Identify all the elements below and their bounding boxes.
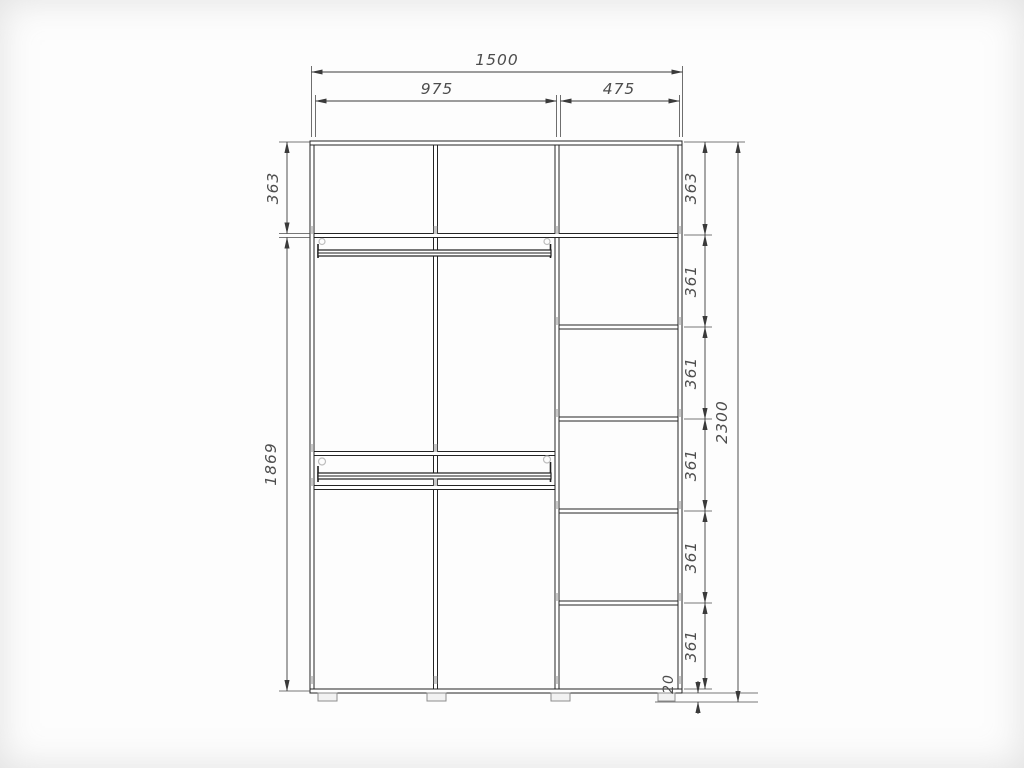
top-shelf-full-width (314, 234, 678, 238)
top-panel (310, 141, 682, 145)
dim-total-height: 2300 (713, 142, 738, 702)
dim-left-top: 363 (264, 142, 287, 234)
drawing-canvas: 1500 975 475 363 1869 (0, 0, 1024, 768)
right-shelf-1 (559, 325, 678, 329)
foot (318, 693, 337, 701)
dim-left-width: 975 (316, 80, 557, 101)
bottom-panel (310, 689, 682, 693)
dim-right-sections: 363 361 361 361 361 361 (682, 142, 705, 689)
dim-label-left-bottom: 1869 (262, 442, 280, 485)
right-shelf-4 (559, 601, 678, 605)
right-shelf-3 (559, 509, 678, 513)
foot (551, 693, 570, 701)
dim-label-right-width: 475 (603, 80, 636, 98)
dimension-lines: 1500 975 475 363 1869 (262, 51, 758, 714)
dim-label-right-6: 361 (682, 630, 700, 663)
cabinet (310, 141, 682, 701)
rail-fitting-icon (319, 239, 325, 245)
foot (427, 693, 446, 701)
dim-label-floor-gap: 20 (661, 674, 677, 694)
left-mid-shelf-upper (314, 452, 555, 456)
dim-label-left-width: 975 (421, 80, 454, 98)
dim-left-bottom: 1869 (262, 238, 287, 692)
left-mid-shelf-lower (314, 486, 555, 490)
wardrobe-dimension-drawing: 1500 975 475 363 1869 (0, 0, 1024, 768)
dim-label-total-height: 2300 (713, 400, 731, 443)
dim-label-right-5: 361 (682, 541, 700, 574)
dim-label-right-4: 361 (682, 449, 700, 482)
rail-fitting-icon (544, 239, 550, 245)
rail-fitting-icon (544, 456, 551, 463)
right-shelf-2 (559, 417, 678, 421)
dim-right-width: 475 (561, 80, 680, 101)
dim-total-width: 1500 (312, 51, 683, 72)
dim-label-left-top: 363 (264, 172, 282, 205)
dim-label-right-1: 363 (682, 172, 700, 205)
feet (318, 693, 675, 701)
dim-label-total-width: 1500 (475, 51, 518, 69)
dim-label-right-2: 361 (682, 265, 700, 298)
dim-label-right-3: 361 (682, 357, 700, 390)
rail-fitting-icon (319, 458, 326, 465)
left-wall (310, 141, 314, 693)
